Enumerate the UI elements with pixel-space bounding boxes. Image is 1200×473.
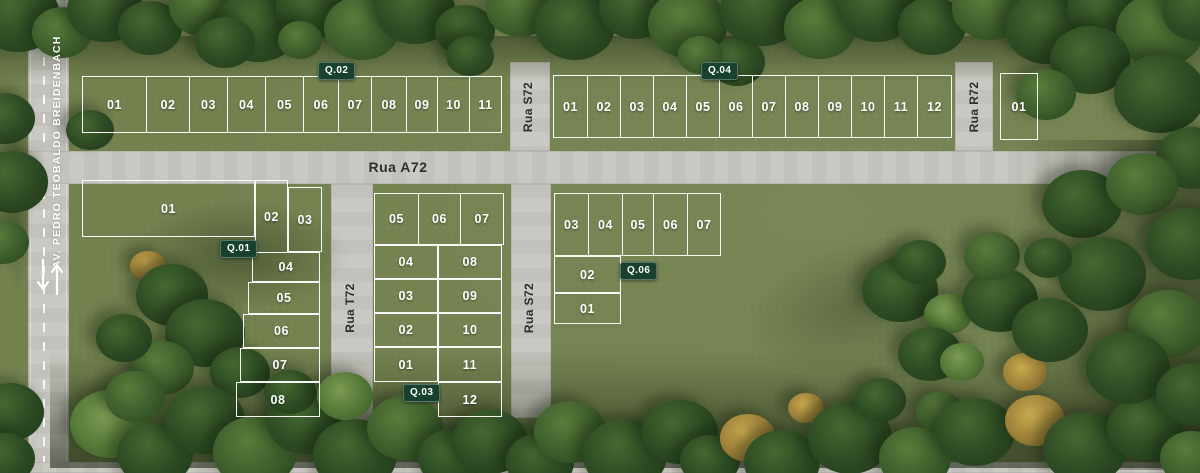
lot: 02 — [255, 180, 288, 253]
badge-q01: Q.01 — [220, 240, 257, 258]
lot: 07 — [752, 76, 785, 137]
lot: 01 — [82, 180, 255, 237]
lot: 08 — [438, 245, 502, 279]
lot: 02 — [587, 76, 620, 137]
lot: 05 — [686, 76, 719, 137]
lot: 03 — [555, 194, 588, 255]
lot: 03 — [374, 279, 438, 313]
lot: 07 — [460, 194, 503, 244]
block-q02: 01 02 03 04 05 06 07 08 09 10 11 — [82, 76, 502, 133]
lot: 07 — [687, 194, 720, 255]
badge-q03: Q.03 — [403, 384, 440, 402]
lot: 11 — [438, 347, 502, 382]
lot: 12 — [917, 76, 951, 137]
road-edge-line — [30, 0, 31, 473]
lot: 04 — [227, 77, 265, 132]
lot: 11 — [469, 77, 501, 132]
lot: 08 — [785, 76, 818, 137]
lot: 05 — [265, 77, 303, 132]
lot: 06 — [653, 194, 687, 255]
lot: 10 — [438, 313, 502, 347]
lot: 11 — [884, 76, 917, 137]
bottom-road — [0, 462, 1200, 473]
badge-q02: Q.02 — [318, 62, 355, 80]
lot: 03 — [189, 77, 227, 132]
block-q04: 01 02 03 04 05 06 07 08 09 10 11 12 — [553, 75, 952, 138]
lot: 08 — [371, 77, 406, 132]
block-q03-top-row: 05 06 07 — [374, 193, 504, 245]
lot: 04 — [588, 194, 622, 255]
lot: 01 — [1000, 73, 1038, 140]
badge-q06: Q.06 — [620, 262, 657, 280]
site-plan-map: 01 02 03 04 05 06 07 08 09 10 11 01 02 0… — [0, 0, 1200, 473]
lot: 06 — [418, 194, 460, 244]
lot: 05 — [248, 282, 320, 314]
lot: 06 — [719, 76, 752, 137]
lot: 10 — [851, 76, 884, 137]
lot: 03 — [288, 187, 322, 252]
lot: 01 — [83, 77, 146, 132]
lot: 02 — [146, 77, 189, 132]
lot: 01 — [374, 347, 438, 382]
lot: 06 — [303, 77, 338, 132]
lot: 07 — [338, 77, 371, 132]
lot: 09 — [406, 77, 437, 132]
lot: 06 — [243, 314, 320, 348]
lot: 08 — [236, 382, 320, 417]
block-q06-top-row: 03 04 05 06 07 — [554, 193, 721, 256]
lot: 04 — [374, 245, 438, 279]
lot: 03 — [620, 76, 653, 137]
road-edge-line — [66, 0, 67, 473]
lot: 07 — [240, 348, 320, 382]
lot: 05 — [622, 194, 653, 255]
lot: 02 — [374, 313, 438, 347]
lot: 12 — [438, 382, 502, 417]
lot: 10 — [437, 77, 469, 132]
lot: 05 — [375, 194, 418, 244]
lot: 09 — [818, 76, 851, 137]
badge-q04: Q.04 — [701, 62, 738, 80]
two-way-traffic-arrows-icon — [34, 256, 66, 298]
lot: 01 — [554, 293, 621, 324]
lot: 04 — [653, 76, 686, 137]
lot: 09 — [438, 279, 502, 313]
lot: 01 — [554, 76, 587, 137]
lot: 02 — [554, 256, 621, 293]
lane-divider-dashes — [43, 0, 45, 473]
lot: 04 — [252, 252, 320, 282]
